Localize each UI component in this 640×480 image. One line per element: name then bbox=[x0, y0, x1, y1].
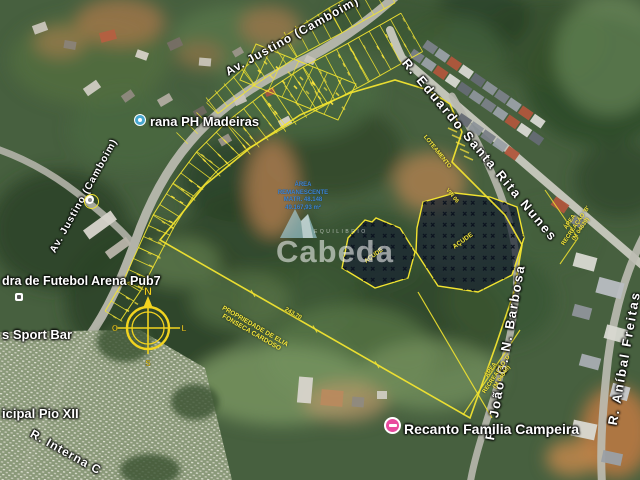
blue-note-line3: MATR. 48.148 bbox=[268, 197, 338, 205]
blue-note-line2: REMANESCENTE bbox=[268, 190, 338, 198]
satellite-map-image: N S L O Av. Justino (Camboim) Av. Justin… bbox=[0, 0, 640, 480]
recanto-lodging-pin-icon[interactable] bbox=[384, 417, 401, 434]
poi-label-futebol[interactable]: dra de Futebol Arena Pub7 bbox=[2, 274, 161, 288]
poi-label-ph-madeiras[interactable]: rana PH Madeiras bbox=[150, 114, 259, 129]
bed-icon bbox=[389, 424, 397, 427]
pin-dot-icon bbox=[138, 118, 142, 122]
compass-l-label: L bbox=[182, 324, 187, 333]
poi-label-sport-bar[interactable]: s Sport Bar bbox=[2, 327, 72, 342]
survey-circle-marker bbox=[84, 194, 99, 209]
poi-label-recanto[interactable]: Recanto Familia Campeira bbox=[404, 421, 579, 437]
ph-madeiras-pin-icon[interactable] bbox=[134, 114, 146, 126]
poi-label-pio-xii[interactable]: icipal Pio XII bbox=[2, 406, 79, 421]
transit-glyph-icon bbox=[17, 295, 21, 299]
compass-rose: N S L O bbox=[112, 286, 188, 374]
blue-note-line1: ÁREA bbox=[268, 182, 338, 190]
watermark-brand: Cabeda bbox=[276, 234, 394, 270]
transit-stop-icon[interactable] bbox=[15, 293, 23, 301]
compass-s-label: S bbox=[145, 359, 151, 368]
compass-o-label: O bbox=[112, 324, 118, 333]
